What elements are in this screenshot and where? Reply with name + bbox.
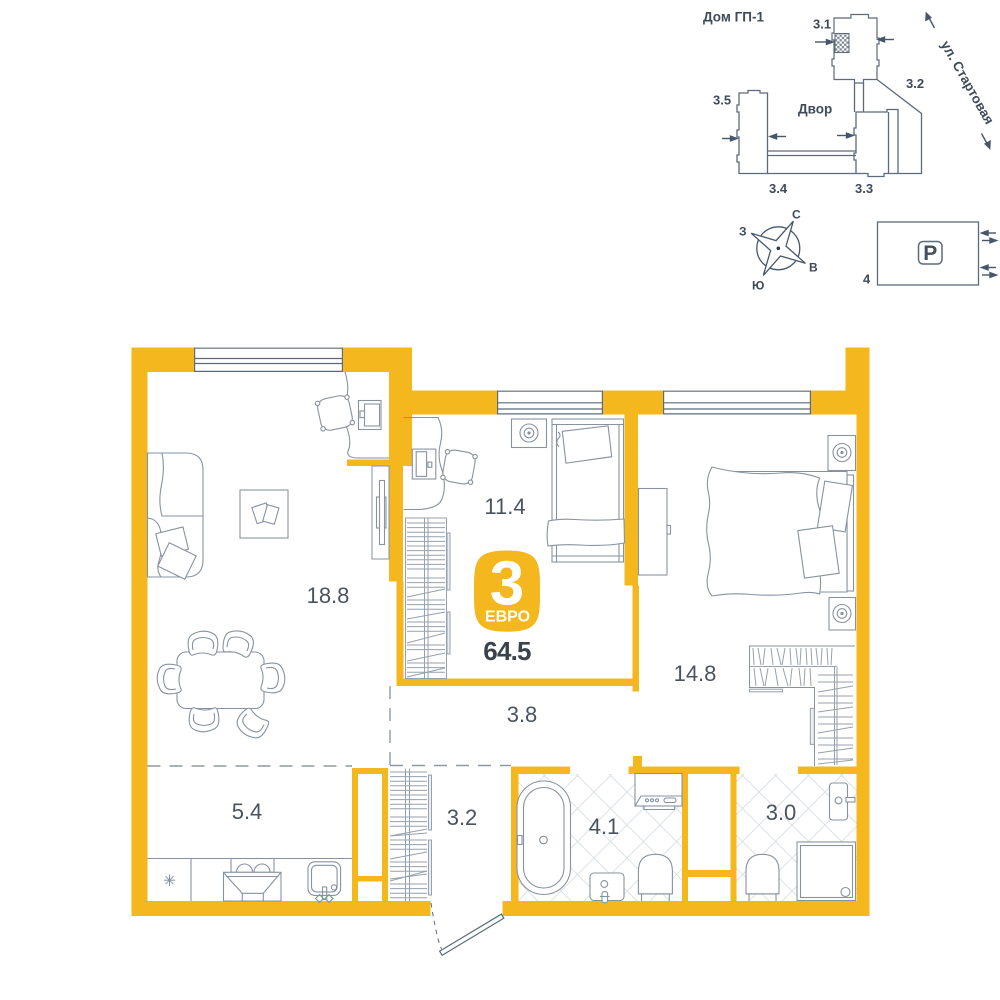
svg-text:4.1: 4.1 [589,814,620,839]
svg-text:В: В [809,261,818,275]
svg-text:5.4: 5.4 [232,799,263,824]
svg-text:3.2: 3.2 [906,76,924,91]
svg-text:С: С [792,208,801,222]
svg-text:Дом ГП-1: Дом ГП-1 [703,10,764,25]
svg-text:3.8: 3.8 [507,702,538,727]
svg-text:3.4: 3.4 [769,181,788,196]
svg-text:3.5: 3.5 [713,93,731,108]
svg-text:P: P [923,242,937,265]
svg-text:4: 4 [863,272,871,287]
svg-text:3.3: 3.3 [855,181,873,196]
svg-text:18.8: 18.8 [307,583,350,608]
svg-text:11.4: 11.4 [484,494,525,519]
svg-text:3.1: 3.1 [813,17,831,32]
svg-text:Ю: Ю [752,279,764,293]
svg-text:64.5: 64.5 [483,636,531,666]
svg-text:Двор: Двор [798,102,832,117]
svg-text:14.8: 14.8 [674,661,717,686]
svg-text:З: З [739,225,747,239]
svg-text:ЕВРО: ЕВРО [485,609,530,626]
svg-text:3.0: 3.0 [766,800,797,825]
svg-text:3.2: 3.2 [447,805,478,830]
